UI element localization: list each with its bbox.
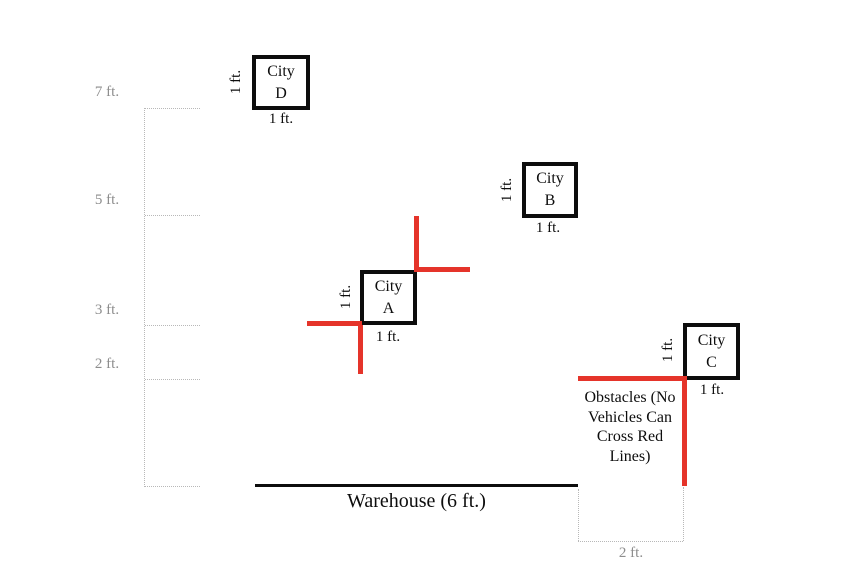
city-a-name: City — [375, 276, 403, 298]
axis-label-5ft: 5 ft. — [84, 191, 130, 209]
bottom-measure-label: 2 ft. — [601, 545, 661, 562]
city-c-height-label: 1 ft. — [659, 325, 677, 375]
axis-tick-bottom — [145, 486, 200, 487]
warehouse-line — [255, 484, 578, 487]
city-d-name: City — [267, 61, 295, 83]
bottom-measure-right-dotted-line — [683, 487, 684, 541]
city-box-a: City A — [360, 270, 417, 325]
city-a-width-label: 1 ft. — [363, 328, 413, 346]
city-c-name: City — [698, 330, 726, 352]
city-b-letter: B — [545, 190, 556, 212]
axis-tick-5ft — [145, 215, 200, 216]
obstacle-line-a-bottom-vertical — [358, 325, 363, 374]
axis-vertical-dotted-line — [144, 108, 145, 487]
obstacle-line-a-bottom-horizontal — [307, 321, 362, 326]
bottom-measure-horizontal-dotted-line — [578, 541, 683, 542]
axis-tick-2ft — [145, 379, 200, 380]
city-d-letter: D — [275, 83, 287, 105]
city-c-width-label: 1 ft. — [687, 381, 737, 399]
axis-label-3ft: 3 ft. — [84, 301, 130, 319]
warehouse-label: Warehouse (6 ft.) — [255, 490, 578, 513]
city-d-width-label: 1 ft. — [256, 110, 306, 128]
city-box-c: City C — [683, 323, 740, 380]
city-a-height-label: 1 ft. — [337, 272, 355, 322]
city-b-name: City — [536, 168, 564, 190]
city-c-letter: C — [706, 352, 717, 374]
obstacle-line-a-top-horizontal — [415, 267, 470, 272]
axis-label-2ft: 2 ft. — [84, 355, 130, 373]
obstacles-note: Obstacles (No Vehicles Can Cross Red Lin… — [566, 388, 694, 466]
axis-label-7ft: 7 ft. — [84, 83, 130, 101]
obstacle-line-c-horizontal — [578, 376, 687, 381]
city-a-letter: A — [383, 298, 395, 320]
obstacle-line-a-top-vertical — [414, 216, 419, 272]
city-b-width-label: 1 ft. — [523, 219, 573, 237]
city-b-height-label: 1 ft. — [498, 165, 516, 215]
city-box-d: City D — [252, 55, 310, 110]
axis-tick-3ft — [145, 325, 200, 326]
city-d-height-label: 1 ft. — [227, 57, 245, 107]
city-box-b: City B — [522, 162, 578, 218]
diagram-canvas: 7 ft. 5 ft. 3 ft. 2 ft. City D 1 ft. 1 f… — [0, 0, 845, 567]
bottom-measure-left-dotted-line — [578, 489, 579, 541]
axis-tick-7ft — [145, 108, 200, 109]
